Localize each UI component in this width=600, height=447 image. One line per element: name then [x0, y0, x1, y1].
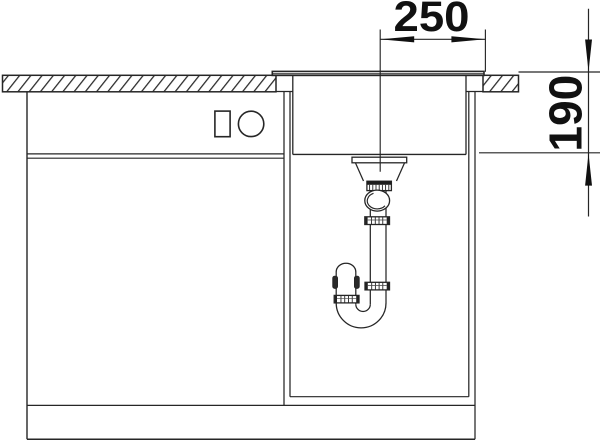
- svg-text:190: 190: [539, 75, 591, 152]
- svg-text:250: 250: [394, 0, 470, 41]
